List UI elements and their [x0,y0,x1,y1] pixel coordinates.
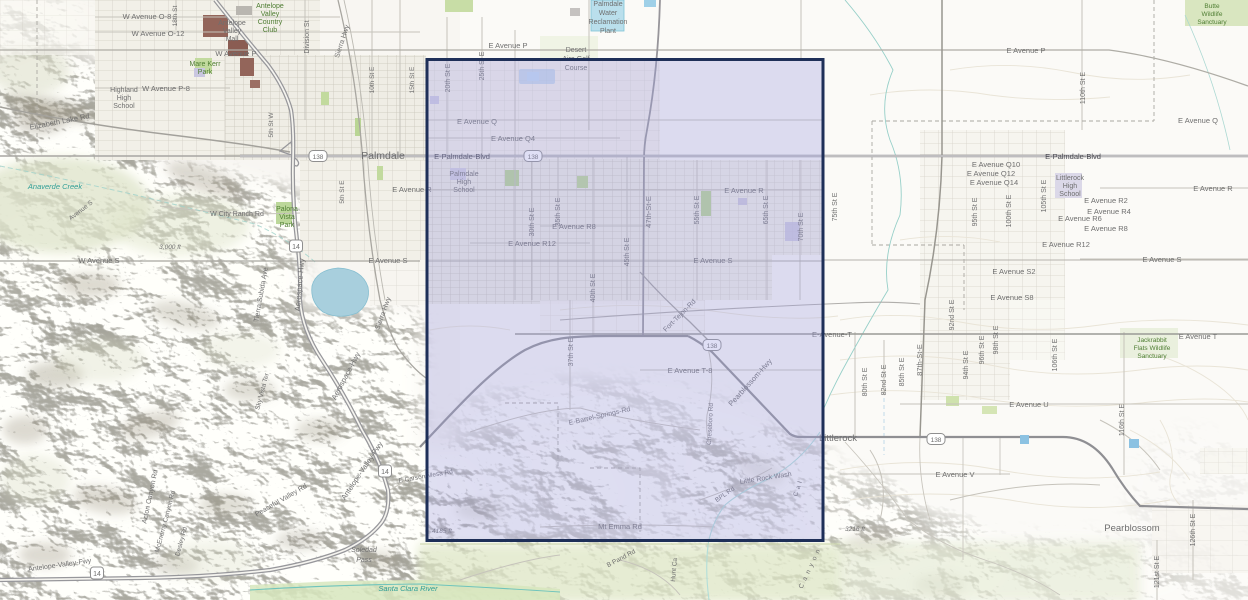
svg-text:Anaverde Creek: Anaverde Creek [27,182,83,191]
svg-text:Plant: Plant [600,28,616,35]
svg-text:Country: Country [258,19,283,26]
svg-text:Park: Park [198,69,213,76]
svg-text:14: 14 [381,469,389,476]
svg-text:E Avenue V: E Avenue V [935,470,974,479]
svg-text:87th-St-E: 87th-St-E [915,344,924,376]
svg-text:Highland: Highland [110,87,138,94]
svg-text:Palmdale: Palmdale [593,1,622,8]
svg-text:W Avenue P-8: W Avenue P-8 [142,84,190,93]
svg-text:Antelope: Antelope [218,20,246,27]
svg-text:3216 ft: 3216 ft [845,526,866,533]
svg-text:121st St E: 121st St E [1154,556,1161,589]
svg-text:18th St: 18th St [172,6,179,27]
svg-text:Pearblossom: Pearblossom [1104,523,1160,534]
svg-text:Antelope: Antelope [256,3,284,10]
svg-text:96th St E: 96th St E [979,335,986,364]
svg-text:E Avenue R: E Avenue R [1193,184,1233,193]
svg-text:75th St E: 75th St E [832,192,839,221]
svg-text:High: High [117,95,132,102]
svg-text:Littlerock: Littlerock [819,433,857,444]
svg-text:126th St E: 126th St E [1190,513,1197,546]
svg-text:14: 14 [93,571,101,578]
svg-text:3,000 ft: 3,000 ft [159,244,182,251]
svg-text:E Avenue Q: E Avenue Q [1178,116,1218,125]
svg-text:110th St E: 110th St E [1080,72,1087,105]
svg-text:Park: Park [280,222,295,229]
svg-text:14: 14 [292,244,300,251]
svg-text:Flats Wildlife: Flats Wildlife [1134,345,1171,352]
svg-text:Division St: Division St [304,20,311,53]
svg-text:Palmdale: Palmdale [361,150,405,162]
svg-text:E Avenue R2: E Avenue R2 [1084,196,1128,205]
svg-text:E Avenue Q14: E Avenue Q14 [970,178,1018,187]
svg-text:E Avenue S2: E Avenue S2 [992,267,1035,276]
svg-text:82nd St E: 82nd St E [881,364,888,395]
svg-text:Water: Water [599,10,618,17]
svg-text:Pass: Pass [356,557,372,564]
svg-text:W City Ranch Rd: W City Ranch Rd [210,211,264,218]
svg-text:W Avenue O-8: W Avenue O-8 [123,12,172,21]
svg-text:Littlerock: Littlerock [1056,175,1085,182]
svg-text:Palona: Palona [276,206,298,213]
svg-text:E Avenue T: E Avenue T [1179,332,1218,341]
svg-text:Reclamation: Reclamation [589,19,628,26]
svg-text:E Avenue S8: E Avenue S8 [990,293,1033,302]
svg-text:95th St E: 95th St E [972,197,979,226]
svg-text:10th St E: 10th St E [369,66,376,93]
svg-text:W Avenue S: W Avenue S [78,256,119,265]
svg-text:Desert: Desert [566,47,587,54]
svg-text:E Avenue S: E Avenue S [368,256,407,265]
svg-text:80th St E: 80th St E [862,367,869,396]
svg-text:Valley: Valley [223,28,242,35]
svg-text:School: School [1059,191,1081,198]
svg-text:85th St E: 85th St E [899,357,906,386]
svg-text:138: 138 [931,437,942,444]
svg-text:School: School [113,103,135,110]
svg-text:106th St E: 106th St E [1052,338,1059,371]
svg-text:E Avenue R8: E Avenue R8 [1084,224,1128,233]
svg-text:W Avenue O-12: W Avenue O-12 [132,29,185,38]
svg-text:Soledad: Soledad [351,547,378,554]
svg-text:92nd St E: 92nd St E [949,299,956,330]
svg-text:E Avenue P: E Avenue P [1006,46,1045,55]
svg-text:Valley: Valley [261,11,280,18]
svg-text:Club: Club [263,27,278,34]
svg-text:Vista: Vista [279,214,295,221]
svg-text:High: High [1063,183,1078,190]
svg-text:E Avenue P: E Avenue P [488,41,527,50]
svg-text:Sanctuary: Sanctuary [1197,19,1227,26]
svg-text:W Avenue P: W Avenue P [215,49,256,58]
svg-text:Wildlife: Wildlife [1202,11,1223,18]
svg-text:Mall: Mall [226,36,239,43]
svg-text:Sanctuary: Sanctuary [1137,353,1167,360]
svg-text:Butte: Butte [1204,3,1220,10]
svg-text:Jackrabbit: Jackrabbit [1137,337,1167,344]
svg-text:E Avenue U: E Avenue U [1009,400,1048,409]
svg-text:Santa Clara River: Santa Clara River [378,584,438,593]
svg-text:15th St E: 15th St E [409,66,416,93]
svg-text:E Avenue R6: E Avenue R6 [1058,214,1102,223]
svg-text:98th St E: 98th St E [993,325,1000,354]
svg-text:105th St E: 105th St E [1041,179,1048,212]
svg-text:94th St E: 94th St E [963,350,970,379]
svg-text:Mare Kerr: Mare Kerr [189,61,221,68]
svg-text:5th St W: 5th St W [268,112,275,138]
svg-text:E Avenue R12: E Avenue R12 [1042,240,1090,249]
svg-text:138: 138 [313,154,324,161]
svg-text:E Avenue Q10: E Avenue Q10 [972,160,1020,169]
svg-text:E-Palmdale-Blvd: E-Palmdale-Blvd [1045,152,1101,161]
svg-text:5th St E: 5th St E [339,180,346,204]
svg-text:100th St E: 100th St E [1006,194,1013,227]
svg-text:116th St E: 116th St E [1119,404,1126,437]
svg-text:E Avenue S: E Avenue S [1142,255,1181,264]
svg-text:E Avenue Q12: E Avenue Q12 [967,169,1015,178]
